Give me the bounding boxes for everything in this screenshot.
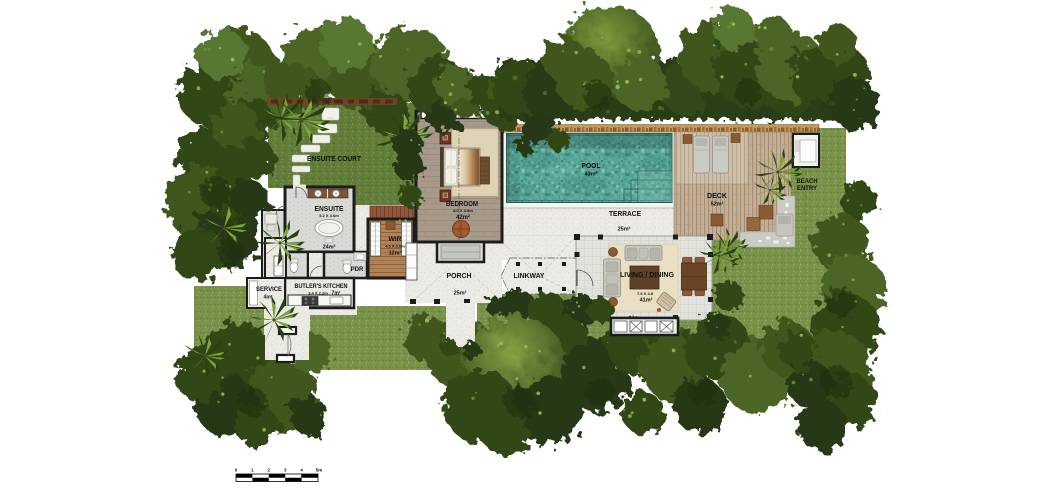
- svg-text:25m²: 25m²: [618, 226, 631, 233]
- svg-text:42m²: 42m²: [456, 214, 470, 221]
- svg-text:5m: 5m: [316, 468, 323, 473]
- svg-text:8.0 X 4.8m: 8.0 X 4.8m: [453, 208, 473, 213]
- svg-text:ENSUITE COURT: ENSUITE COURT: [307, 154, 361, 163]
- svg-text:25m²: 25m²: [454, 290, 467, 297]
- svg-text:ENTRY: ENTRY: [797, 186, 817, 192]
- svg-text:BEACH: BEACH: [797, 179, 818, 185]
- svg-text:3.4 X 2.2m: 3.4 X 2.2m: [308, 291, 328, 296]
- svg-text:PDR: PDR: [351, 267, 364, 273]
- svg-text:43m²: 43m²: [585, 171, 598, 178]
- svg-text:12m²: 12m²: [389, 250, 402, 257]
- svg-text:TERRACE: TERRACE: [609, 209, 641, 218]
- svg-text:7.6 X 4.8: 7.6 X 4.8: [637, 291, 654, 296]
- svg-text:BEDROOM: BEDROOM: [446, 199, 478, 208]
- svg-text:41m²: 41m²: [640, 297, 653, 304]
- svg-text:5.2 X 4.6m: 5.2 X 4.6m: [319, 213, 339, 218]
- svg-text:52m²: 52m²: [711, 201, 724, 208]
- svg-text:BUTLER'S KITCHEN: BUTLER'S KITCHEN: [295, 283, 348, 290]
- svg-text:WIR: WIR: [389, 236, 402, 243]
- svg-text:DECK: DECK: [707, 193, 727, 200]
- svg-text:SERVICE: SERVICE: [256, 286, 283, 293]
- svg-text:4.5 X 2.6m: 4.5 X 2.6m: [385, 244, 405, 249]
- svg-text:24m²: 24m²: [323, 244, 336, 251]
- svg-text:POOL: POOL: [582, 161, 601, 170]
- svg-text:ENSUITE: ENSUITE: [315, 204, 344, 213]
- svg-text:7m²: 7m²: [332, 291, 341, 297]
- svg-text:PORCH: PORCH: [447, 271, 472, 280]
- svg-text:LIVING / DINING: LIVING / DINING: [620, 270, 674, 279]
- svg-text:LINKWAY: LINKWAY: [514, 273, 545, 280]
